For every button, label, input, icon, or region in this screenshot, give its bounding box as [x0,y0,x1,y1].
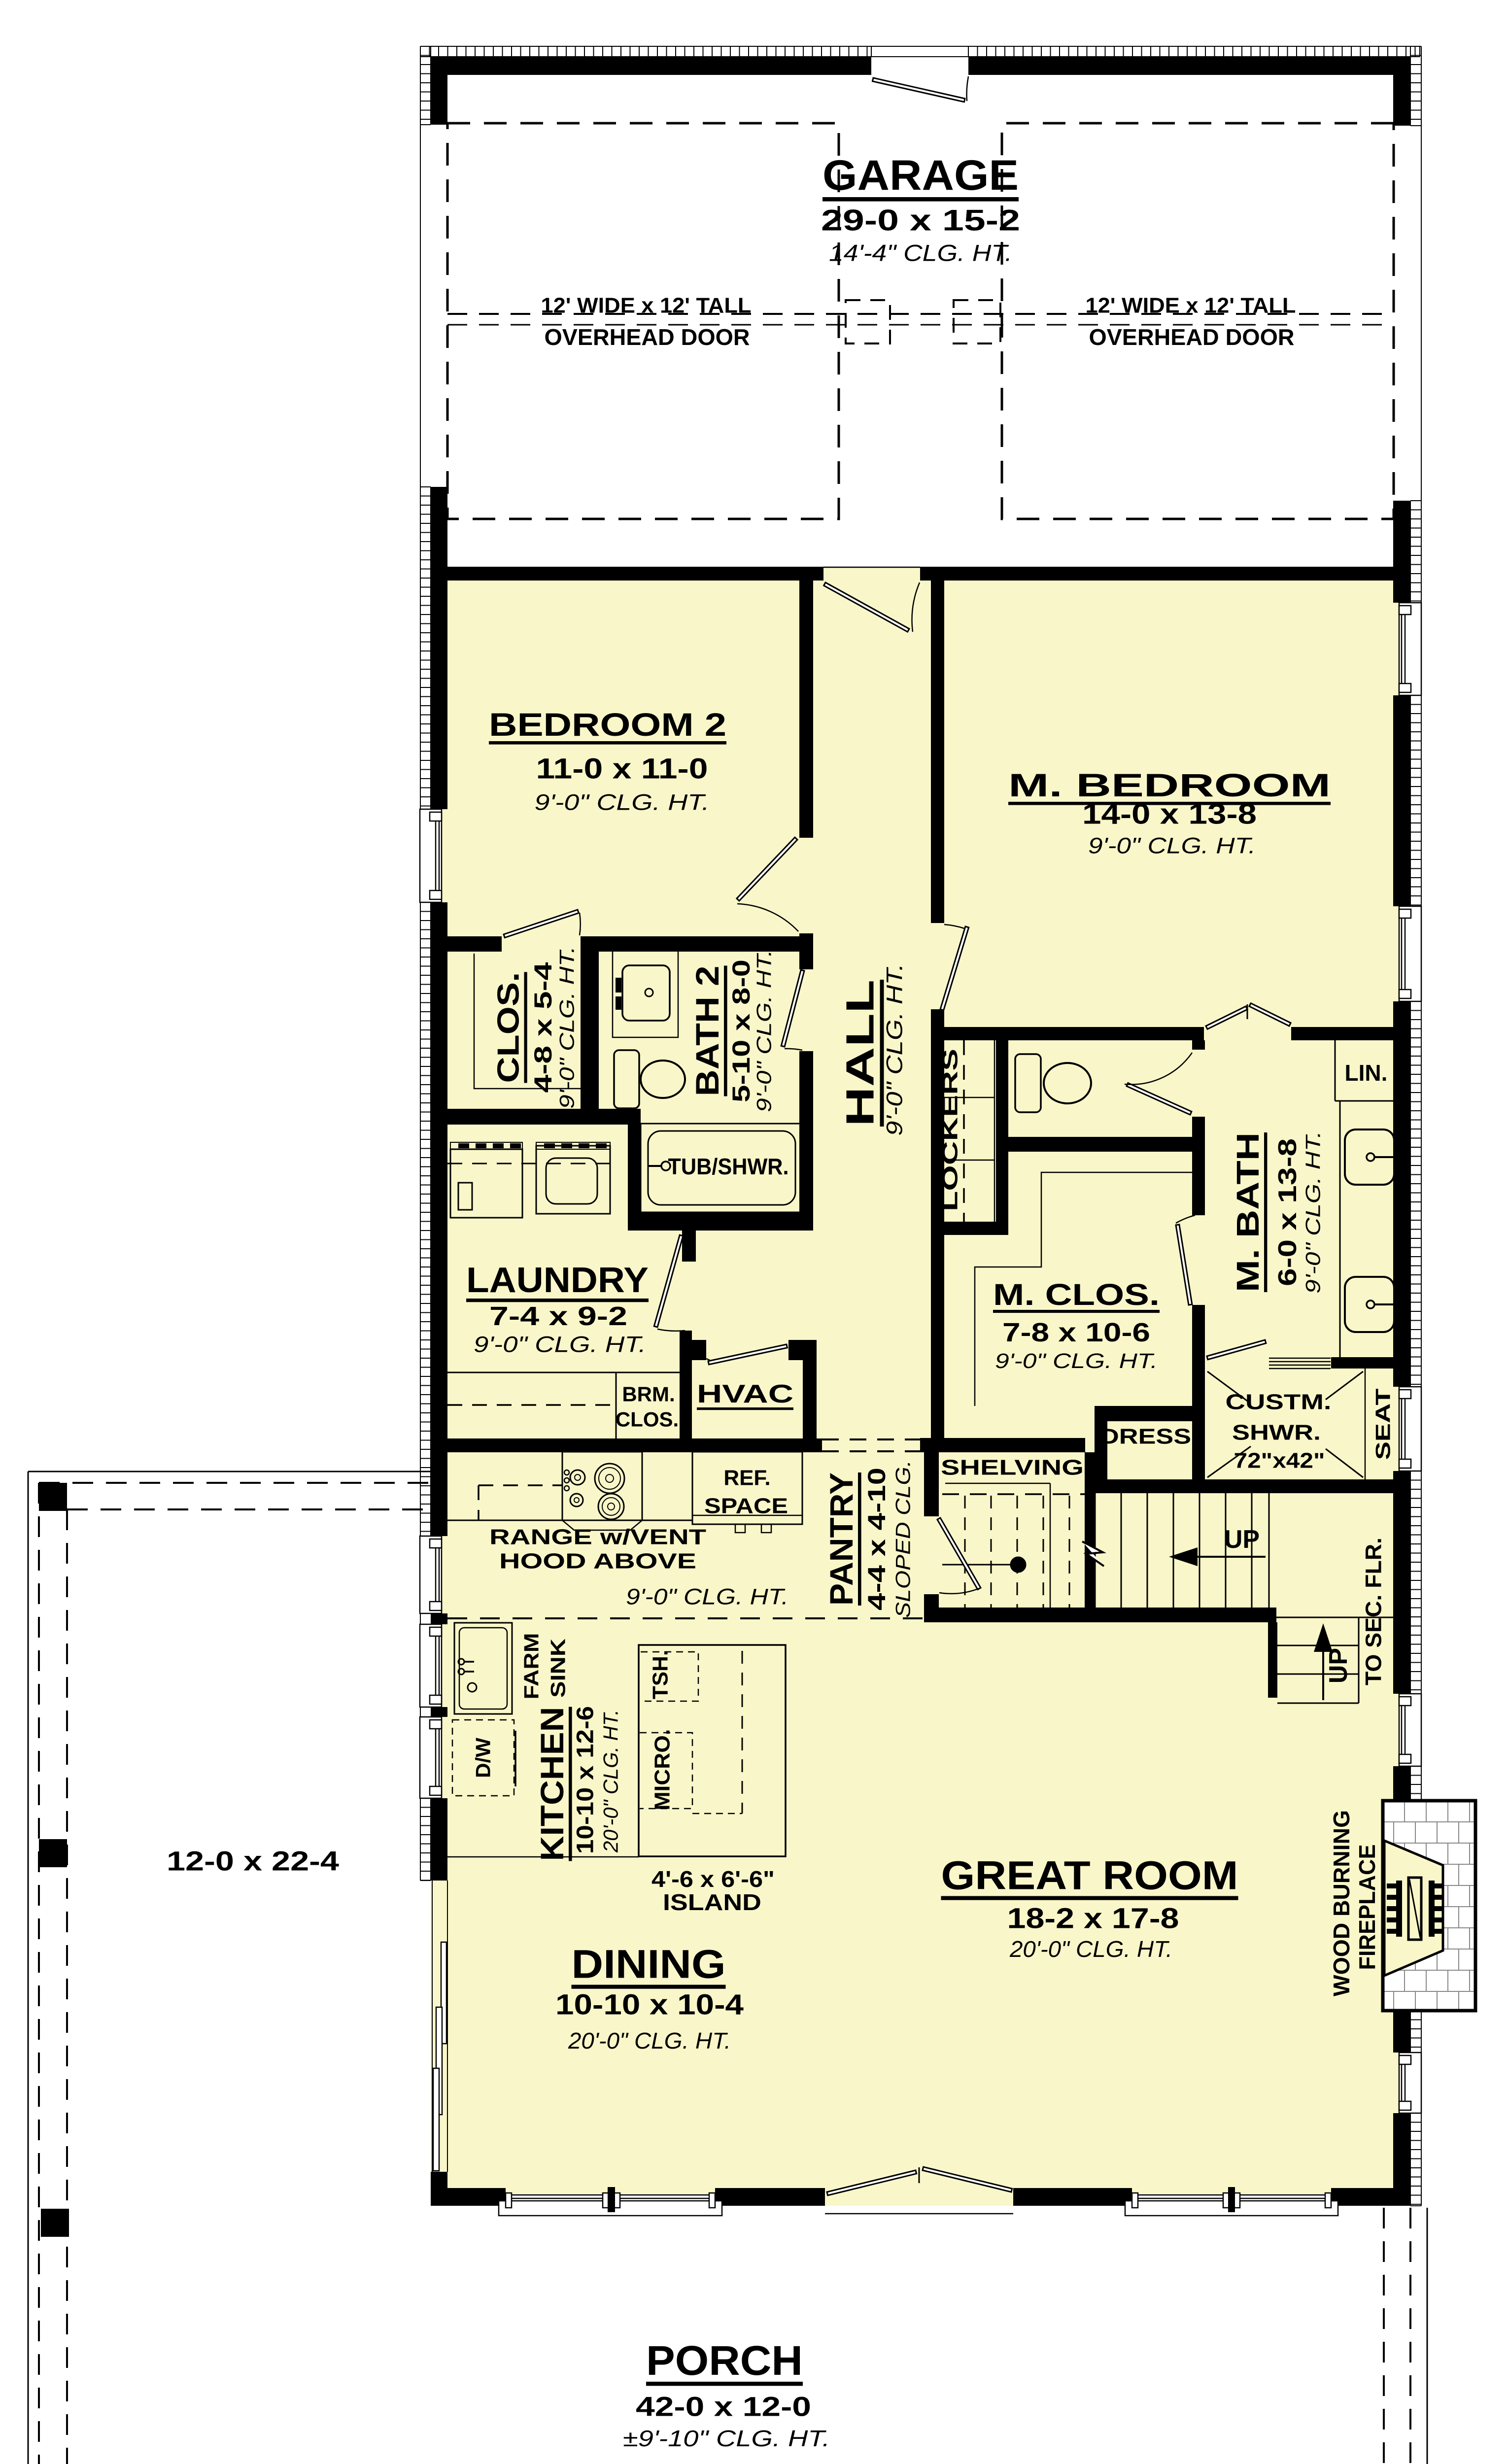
svg-text:72"x42": 72"x42" [1234,1449,1325,1473]
svg-text:M. CLOS.: M. CLOS. [993,1278,1160,1311]
svg-text:9'-0" CLG. HT.: 9'-0" CLG. HT. [1302,1131,1325,1294]
svg-text:4-8 x 5-4: 4-8 x 5-4 [529,962,557,1093]
svg-text:GREAT ROOM: GREAT ROOM [941,1853,1238,1898]
svg-text:SLOPED CLG.: SLOPED CLG. [891,1460,915,1618]
svg-text:4-4 x 4-10: 4-4 x 4-10 [863,1468,891,1610]
svg-text:REF.: REF. [723,1466,770,1490]
svg-text:10-10 x 10-4: 10-10 x 10-4 [555,1989,744,2021]
svg-text:BATH 2: BATH 2 [689,966,725,1096]
svg-text:5-10 x 8-0: 5-10 x 8-0 [727,959,755,1102]
svg-text:9'-0" CLG. HT.: 9'-0" CLG. HT. [535,790,710,815]
svg-text:FIREPLACE: FIREPLACE [1354,1845,1380,1970]
svg-text:LOCKERS: LOCKERS [938,1049,962,1211]
svg-text:TO SEC. FLR.: TO SEC. FLR. [1361,1538,1386,1685]
svg-text:HVAC: HVAC [697,1380,793,1408]
svg-text:12-0 x 22-4: 12-0 x 22-4 [167,1846,339,1877]
svg-text:±9'-10" CLG. HT.: ±9'-10" CLG. HT. [623,2426,830,2451]
svg-text:OVERHEAD DOOR: OVERHEAD DOOR [545,324,750,350]
svg-text:UP: UP [1324,1648,1353,1683]
svg-text:9'-0" CLG. HT.: 9'-0" CLG. HT. [474,1332,646,1357]
svg-text:GARAGE: GARAGE [823,152,1019,199]
svg-text:D/W: D/W [472,1738,495,1778]
svg-text:9'-0" CLG. HT.: 9'-0" CLG. HT. [753,950,776,1112]
svg-text:11-0 x 11-0: 11-0 x 11-0 [536,753,708,785]
svg-text:TUB/SHWR.: TUB/SHWR. [668,1154,789,1179]
svg-text:PORCH: PORCH [646,2337,803,2384]
svg-text:ISLAND: ISLAND [663,1889,761,1915]
svg-text:DRESS.: DRESS. [1100,1425,1199,1449]
svg-text:RANGE w/VENT: RANGE w/VENT [489,1525,706,1549]
svg-text:10-10 x 12-6: 10-10 x 12-6 [573,1706,599,1854]
svg-text:BEDROOM 2: BEDROOM 2 [489,706,726,743]
svg-text:SHELVING: SHELVING [941,1456,1084,1480]
svg-text:20'-0" CLG. HT.: 20'-0" CLG. HT. [568,2028,731,2053]
svg-text:SHWR.: SHWR. [1232,1421,1321,1445]
svg-text:7-8 x 10-6: 7-8 x 10-6 [1002,1318,1150,1347]
svg-text:LAUNDRY: LAUNDRY [466,1261,649,1300]
svg-text:14-0 x 13-8: 14-0 x 13-8 [1082,798,1257,830]
svg-text:BRM.: BRM. [622,1383,675,1406]
svg-text:9'-0" CLG. HT.: 9'-0" CLG. HT. [995,1349,1158,1373]
svg-text:SPACE: SPACE [704,1494,788,1518]
svg-text:DINING: DINING [572,1942,726,1987]
svg-text:20'-0" CLG. HT.: 20'-0" CLG. HT. [599,1710,622,1853]
svg-text:4'-6 x 6'-6": 4'-6 x 6'-6" [651,1866,775,1892]
svg-text:HALL: HALL [838,980,882,1127]
svg-text:CUSTM.: CUSTM. [1226,1390,1332,1414]
svg-text:18-2 x 17-8: 18-2 x 17-8 [1007,1903,1179,1935]
svg-text:7-4 x 9-2: 7-4 x 9-2 [489,1301,627,1331]
svg-text:LIN.: LIN. [1345,1060,1388,1086]
svg-text:9'-0" CLG. HT.: 9'-0" CLG. HT. [882,963,907,1136]
svg-text:SEAT: SEAT [1371,1388,1395,1460]
svg-text:CLOS.: CLOS. [616,1408,679,1431]
svg-text:12' WIDE x 12' TALL: 12' WIDE x 12' TALL [1086,294,1296,318]
svg-text:9'-0" CLG. HT.: 9'-0" CLG. HT. [1088,833,1256,858]
svg-text:M. BATH: M. BATH [1230,1132,1266,1292]
svg-text:OVERHEAD DOOR: OVERHEAD DOOR [1089,324,1295,350]
svg-text:MICRO.: MICRO. [651,1729,675,1811]
svg-text:FARM: FARM [520,1633,543,1700]
svg-text:14'-4" CLG. HT.: 14'-4" CLG. HT. [829,240,1012,266]
svg-text:9'-0" CLG. HT.: 9'-0" CLG. HT. [626,1584,788,1609]
svg-text:CLOS.: CLOS. [492,972,526,1083]
svg-text:42-0 x 12-0: 42-0 x 12-0 [636,2391,811,2422]
svg-text:12' WIDE x 12' TALL: 12' WIDE x 12' TALL [541,294,752,318]
svg-text:29-0 x 15-2: 29-0 x 15-2 [821,204,1020,237]
svg-text:TSH.: TSH. [649,1650,673,1699]
svg-text:WOOD BURNING: WOOD BURNING [1329,1810,1354,1996]
svg-text:UP: UP [1224,1525,1260,1554]
svg-text:KITCHEN: KITCHEN [534,1707,570,1861]
svg-text:SINK: SINK [547,1639,570,1698]
svg-text:9'-0" CLG. HT.: 9'-0" CLG. HT. [555,946,579,1109]
svg-text:6-0 x 13-8: 6-0 x 13-8 [1273,1138,1302,1286]
svg-text:HOOD ABOVE: HOOD ABOVE [499,1549,696,1574]
svg-text:20'-0" CLG. HT.: 20'-0" CLG. HT. [1009,1936,1172,1962]
svg-text:PANTRY: PANTRY [823,1472,859,1606]
